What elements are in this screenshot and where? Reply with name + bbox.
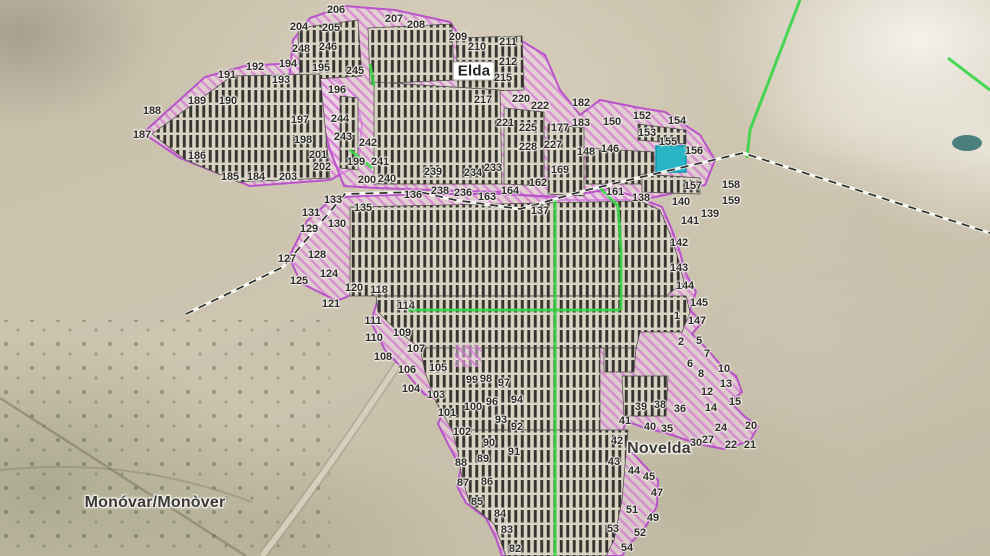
- parcel-label-135: 135: [354, 202, 372, 214]
- parcel-label-30: 30: [690, 437, 702, 449]
- parcel-label-245: 245: [346, 65, 364, 77]
- parcel-label-183: 183: [572, 117, 590, 129]
- parcel-label-127: 127: [278, 253, 296, 265]
- parcel-label-89: 89: [477, 453, 489, 465]
- parcel-label-210: 210: [468, 41, 486, 53]
- parcel-label-199: 199: [347, 156, 365, 168]
- parcel-label-225: 225: [519, 122, 537, 134]
- parcel-label-93: 93: [495, 414, 507, 426]
- parcel-label-238: 238: [431, 185, 449, 197]
- parcel-label-206: 206: [327, 4, 345, 16]
- parcel-label-47: 47: [651, 487, 663, 499]
- parcel-label-42: 42: [611, 435, 623, 447]
- parcel-label-14: 14: [705, 402, 717, 414]
- parcel-label-39: 39: [635, 401, 647, 413]
- parcel-label-107: 107: [407, 343, 425, 355]
- parcel-label-157: 157: [684, 180, 702, 192]
- parcel-label-141: 141: [681, 215, 699, 227]
- parcel-label-156: 156: [685, 145, 703, 157]
- parcel-label-162: 162: [529, 177, 547, 189]
- parcel-label-49: 49: [647, 512, 659, 524]
- parcel-label-239: 239: [424, 166, 442, 178]
- parcel-label-147: 147: [688, 315, 706, 327]
- parcel-label-102: 102: [453, 426, 471, 438]
- place-label-elda: Elda: [453, 62, 495, 81]
- parcel-label-233: 233: [484, 162, 502, 174]
- parcel-label-222: 222: [531, 100, 549, 112]
- parcel-label-87: 87: [457, 477, 469, 489]
- parcel-label-83: 83: [501, 524, 513, 536]
- parcel-label-100: 100: [464, 401, 482, 413]
- parcel-label-84: 84: [494, 508, 506, 520]
- parcel-label-198: 198: [294, 134, 312, 146]
- parcel-label-211: 211: [499, 36, 517, 48]
- parcel-label-205: 205: [322, 22, 340, 34]
- parcel-label-96: 96: [486, 396, 498, 408]
- parcel-label-188: 188: [143, 105, 161, 117]
- parcel-label-109: 109: [393, 327, 411, 339]
- parcel-label-124: 124: [320, 268, 338, 280]
- parcel-label-118: 118: [370, 284, 388, 296]
- parcel-label-20: 20: [745, 420, 757, 432]
- parcel-label-164: 164: [501, 185, 519, 197]
- parcel-label-6: 6: [687, 358, 693, 370]
- parcel-label-209: 209: [449, 31, 467, 43]
- parcel-label-152: 152: [633, 110, 651, 122]
- parcel-label-241: 241: [371, 156, 389, 168]
- parcel-label-114: 114: [397, 300, 415, 312]
- parcel-label-133: 133: [324, 194, 342, 206]
- parcel-label-161: 161: [606, 186, 624, 198]
- parcel-label-221: 221: [496, 117, 514, 129]
- parcel-label-99: 99: [466, 374, 478, 386]
- parcel-label-195: 195: [312, 62, 330, 74]
- parcel-label-191: 191: [218, 69, 236, 81]
- parcel-label-52: 52: [634, 527, 646, 539]
- parcel-label-104: 104: [402, 383, 420, 395]
- parcel-label-10: 10: [718, 363, 730, 375]
- parcel-label-240: 240: [378, 173, 396, 185]
- parcel-label-128: 128: [308, 249, 326, 261]
- parcel-label-97: 97: [498, 377, 510, 389]
- parcel-label-244: 244: [331, 113, 349, 125]
- parcel-label-45: 45: [643, 471, 655, 483]
- parcel-label-88: 88: [455, 457, 467, 469]
- parcel-label-143: 143: [670, 262, 688, 274]
- parcel-label-242: 242: [359, 137, 377, 149]
- parcel-label-44: 44: [628, 465, 640, 477]
- parcel-label-106: 106: [398, 364, 416, 376]
- parcel-label-138: 138: [632, 192, 650, 204]
- parcel-label-12: 12: [701, 386, 713, 398]
- parcel-label-203: 203: [279, 171, 297, 183]
- parcel-label-146: 146: [601, 143, 619, 155]
- parcel-label-21: 21: [744, 439, 756, 451]
- parcel-label-159: 159: [722, 195, 740, 207]
- parcel-label-212: 212: [499, 56, 517, 68]
- parcel-label-22: 22: [725, 439, 737, 451]
- parcel-label-13: 13: [720, 378, 732, 390]
- parcel-label-207: 207: [385, 13, 403, 25]
- parcel-label-248: 248: [292, 43, 310, 55]
- parcel-label-27: 27: [702, 434, 714, 446]
- parcel-label-163: 163: [478, 191, 496, 203]
- parcel-label-155: 155: [659, 136, 677, 148]
- parcel-label-105: 105: [429, 362, 447, 374]
- parcel-label-86: 86: [481, 476, 493, 488]
- parcel-label-202: 202: [313, 161, 331, 173]
- parcel-label-7: 7: [704, 348, 710, 360]
- parcel-label-189: 189: [188, 95, 206, 107]
- parcel-label-111: 111: [364, 315, 381, 327]
- parcel-label-36: 36: [674, 403, 686, 415]
- parcel-label-35: 35: [661, 423, 673, 435]
- parcel-labels-layer: 2062042052072082092102112122152172202222…: [0, 0, 990, 556]
- parcel-label-192: 192: [246, 61, 264, 73]
- parcel-label-90: 90: [483, 437, 495, 449]
- parcel-label-120: 120: [345, 282, 363, 294]
- parcel-label-200: 200: [358, 174, 376, 186]
- parcel-label-208: 208: [407, 19, 425, 31]
- parcel-label-187: 187: [133, 129, 151, 141]
- parcel-label-103: 103: [427, 389, 445, 401]
- parcel-label-177: 177: [551, 122, 569, 134]
- parcel-label-85: 85: [471, 496, 483, 508]
- satellite-map[interactable]: 2062042052072082092102112122152172202222…: [0, 0, 990, 556]
- parcel-label-101: 101: [438, 407, 456, 419]
- parcel-label-43: 43: [608, 456, 620, 468]
- parcel-label-185: 185: [221, 171, 239, 183]
- parcel-label-8: 8: [698, 368, 704, 380]
- parcel-label-5: 5: [696, 335, 702, 347]
- parcel-label-125: 125: [290, 275, 308, 287]
- parcel-label-145: 145: [690, 297, 708, 309]
- parcel-label-38: 38: [654, 399, 666, 411]
- parcel-label-246: 246: [319, 41, 337, 53]
- parcel-label-169: 169: [551, 164, 569, 176]
- parcel-label-15: 15: [729, 396, 741, 408]
- parcel-label-110: 110: [365, 332, 383, 344]
- parcel-label-40: 40: [644, 421, 656, 433]
- parcel-label-243: 243: [334, 131, 352, 143]
- parcel-label-182: 182: [572, 97, 590, 109]
- parcel-label-234: 234: [464, 167, 482, 179]
- parcel-label-129: 129: [300, 223, 318, 235]
- parcel-label-154: 154: [668, 115, 686, 127]
- parcel-label-236: 236: [454, 187, 472, 199]
- parcel-label-2: 2: [678, 336, 684, 348]
- parcel-label-197: 197: [291, 114, 309, 126]
- parcel-label-227: 227: [544, 139, 562, 151]
- parcel-label-193: 193: [272, 74, 290, 86]
- parcel-label-220: 220: [512, 93, 530, 105]
- place-label-mon-var-mon-ver: Monóvar/Monòver: [85, 494, 226, 512]
- parcel-label-51: 51: [626, 504, 638, 516]
- parcel-label-139: 139: [701, 208, 719, 220]
- parcel-label-201: 201: [309, 149, 327, 161]
- parcel-label-108: 108: [374, 351, 392, 363]
- parcel-label-24: 24: [715, 422, 727, 434]
- parcel-label-1: 1: [674, 310, 680, 322]
- parcel-label-150: 150: [603, 116, 621, 128]
- parcel-label-91: 91: [508, 446, 520, 458]
- parcel-label-121: 121: [322, 298, 340, 310]
- place-label-novelda: Novelda: [627, 440, 691, 458]
- parcel-label-92: 92: [511, 421, 523, 433]
- parcel-label-140: 140: [672, 196, 690, 208]
- parcel-label-148: 148: [577, 146, 595, 158]
- parcel-label-142: 142: [670, 237, 688, 249]
- parcel-label-41: 41: [619, 415, 631, 427]
- parcel-label-54: 54: [621, 542, 633, 554]
- parcel-label-153: 153: [638, 127, 656, 139]
- parcel-label-194: 194: [279, 58, 297, 70]
- parcel-label-130: 130: [328, 218, 346, 230]
- parcel-label-144: 144: [676, 280, 694, 292]
- parcel-label-98: 98: [480, 373, 492, 385]
- parcel-label-94: 94: [511, 394, 523, 406]
- parcel-label-158: 158: [722, 179, 740, 191]
- parcel-label-137: 137: [531, 205, 549, 217]
- parcel-label-215: 215: [494, 72, 512, 84]
- parcel-label-196: 196: [328, 84, 346, 96]
- parcel-label-53: 53: [607, 523, 619, 535]
- parcel-label-186: 186: [188, 150, 206, 162]
- parcel-label-136: 136: [404, 189, 422, 201]
- parcel-label-82: 82: [509, 543, 521, 555]
- parcel-label-190: 190: [219, 95, 237, 107]
- parcel-label-131: 131: [302, 207, 320, 219]
- parcel-label-228: 228: [519, 141, 537, 153]
- parcel-label-204: 204: [290, 21, 308, 33]
- parcel-label-217: 217: [474, 94, 492, 106]
- parcel-label-184: 184: [247, 171, 265, 183]
